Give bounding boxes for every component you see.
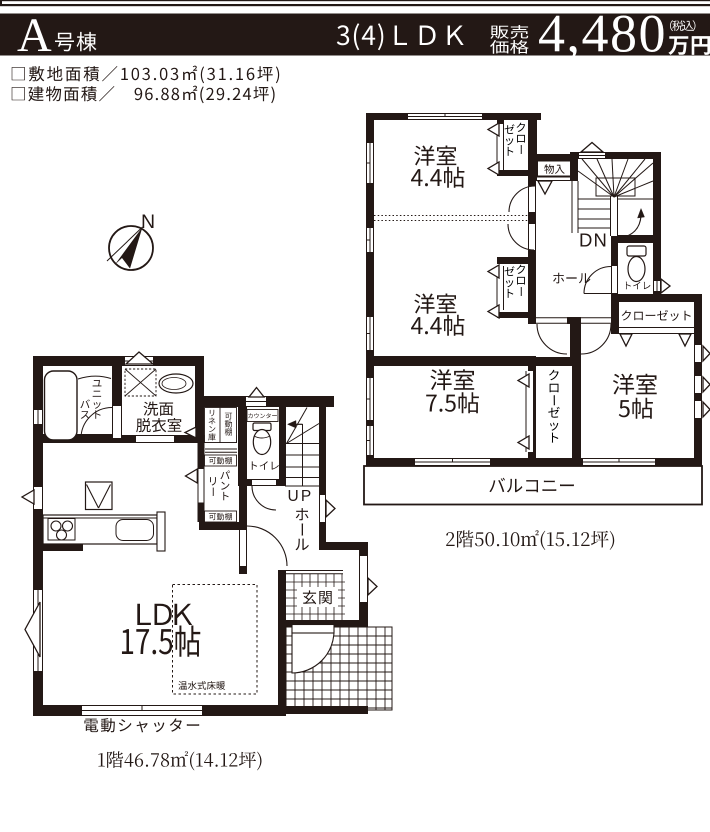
svg-text:A: A <box>17 9 52 62</box>
svg-text:UP: UP <box>288 488 314 505</box>
svg-text:4,480: 4,480 <box>538 4 667 64</box>
svg-text:DN: DN <box>579 230 608 251</box>
svg-text:N: N <box>141 211 155 233</box>
